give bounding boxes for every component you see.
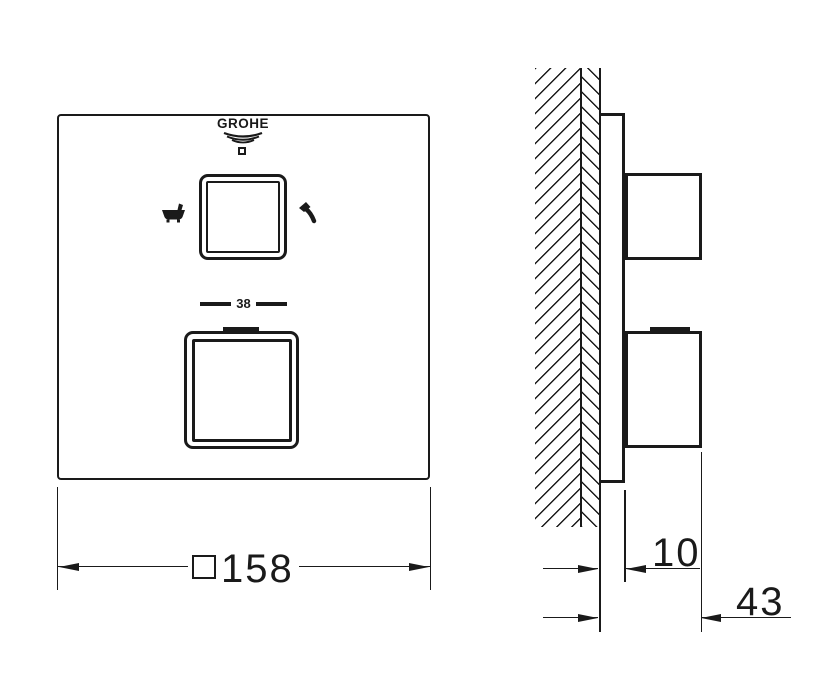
thermostat-knob-grip-side — [650, 327, 690, 333]
extension-line-knob-front — [701, 452, 702, 632]
technical-drawing: GROHE 38 — [0, 0, 832, 692]
dim-arrow-left-icon — [701, 614, 721, 622]
grohe-waves-icon — [222, 131, 264, 144]
diverter-knob-face — [206, 181, 280, 253]
square-section-symbol — [192, 555, 216, 579]
temperature-line-left — [200, 302, 231, 306]
dimension-total-depth-value: 43 — [736, 585, 785, 619]
hand-shower-icon — [297, 201, 322, 224]
diverter-knob-side-profile — [625, 173, 702, 260]
diverter-knob — [199, 174, 287, 260]
thermostat-knob-side-profile — [625, 331, 702, 448]
dimension-plate-depth-value: 10 — [652, 536, 701, 570]
wall-hatch-left — [535, 68, 581, 527]
wall-hatch-centerline — [580, 68, 581, 527]
extension-line-right — [430, 487, 431, 590]
dim-arrow-left-icon — [626, 565, 646, 573]
dim-arrow-left-icon — [59, 563, 79, 571]
thermostat-knob — [184, 331, 299, 449]
temperature-line-right — [256, 302, 287, 306]
thermostat-knob-face — [192, 339, 292, 442]
faceplate-side-profile — [601, 113, 625, 483]
bathtub-icon — [161, 202, 186, 223]
wall-hatch-right — [581, 68, 600, 527]
extension-line-left — [57, 487, 58, 590]
dim-arrow-right-icon — [578, 614, 598, 622]
logo-square-mark — [238, 147, 246, 155]
brand-logo: GROHE — [214, 116, 272, 131]
temperature-mark: 38 — [231, 297, 256, 310]
dimension-width-value: 158 — [221, 552, 294, 586]
dim-arrow-right-icon — [578, 565, 598, 573]
dim-arrow-right-icon — [409, 563, 429, 571]
thermostat-knob-grip — [223, 327, 259, 333]
